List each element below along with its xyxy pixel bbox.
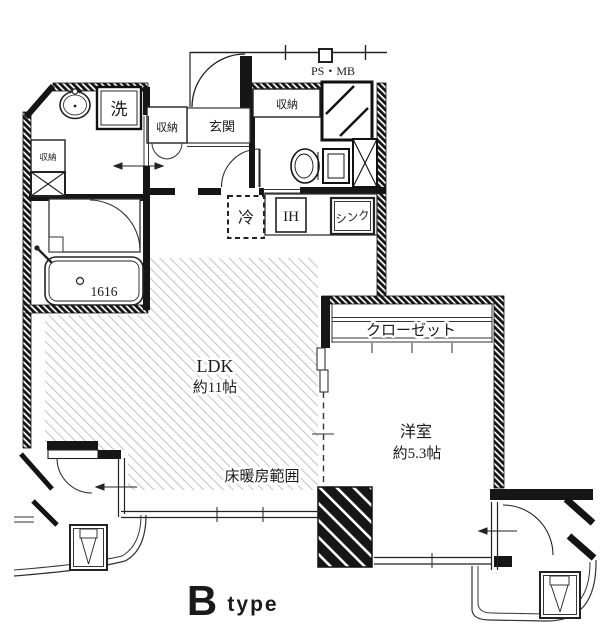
washroom-shaft-icon (31, 172, 65, 196)
unit-type-letter: B (187, 577, 217, 624)
ldk-balcony-door-frame (48, 450, 98, 459)
toilet-shaft-icon (353, 139, 377, 187)
partition-panel-b (320, 370, 328, 392)
washbasin-icon (60, 89, 90, 119)
partition-panel-a (317, 348, 325, 370)
meter-box-icon (319, 49, 332, 62)
ldk-area-label: 約11帖 (193, 379, 237, 396)
washbasin-drain (74, 105, 77, 108)
ps-shaft-icon (322, 82, 372, 140)
toilet-tank-inner (328, 154, 344, 178)
ps-mb-label: PS・MB (311, 64, 355, 78)
bifold-door-arc-right (167, 143, 182, 159)
wall-chamfer-bottom-right-b (569, 536, 594, 558)
toilet-bowl-inner (295, 154, 313, 178)
toilet-icon (291, 149, 349, 183)
wall-balcony-left-diag-b (33, 501, 57, 525)
wall-left (23, 112, 31, 448)
washroom-slide-arrow (114, 163, 163, 169)
ldk-balcony-door-arc (57, 458, 92, 493)
wall-hall-bottom-b (198, 188, 221, 195)
wall-washroom-right-bottom (143, 166, 150, 310)
wall-chamfer-bottom-right-a (566, 499, 593, 523)
wall-western-left (321, 296, 330, 348)
western-room-area-label: 約5.3帖 (393, 445, 442, 462)
western-room-name-label: 洋室 (400, 423, 432, 441)
bifold-door-arc-left (152, 143, 167, 159)
western-balcony-door-arc (503, 505, 553, 555)
wall-chamfer-top-left (26, 86, 53, 117)
western-window (374, 553, 491, 568)
entrance-storage-right-label: 収納 (276, 98, 298, 111)
wall-western-door-bottom (494, 556, 512, 567)
washbasin-faucet (72, 89, 77, 94)
wall-toilet-bottom (300, 187, 386, 194)
wall-western-right (494, 296, 504, 488)
wall-hall-bottom-a (143, 188, 175, 195)
toilet-sliding-door (263, 190, 300, 194)
wall-bottom-right-a (490, 489, 593, 500)
washroom-storage-label: 収納 (39, 152, 56, 162)
cooktop-label: IH (283, 209, 299, 225)
shower-drain-corner (49, 237, 63, 252)
ldk-name-label: LDK (197, 356, 234, 376)
ac-unit-left-icon (70, 525, 107, 570)
wall-western-top (322, 296, 502, 304)
ac-unit-right-icon (540, 572, 580, 618)
floorplan-page: PS・MB 玄関 収納 収納 冷 IH (0, 0, 610, 640)
bathtub-drain (77, 278, 84, 285)
pillar-hatched (318, 487, 372, 567)
wall-balcony-door-top (47, 441, 98, 450)
front-door-arc (192, 54, 245, 107)
washer-label: 洗 (111, 100, 128, 119)
genkan-label: 玄関 (209, 119, 235, 134)
bathtub-size-label: 1616 (91, 284, 118, 299)
entrance-storage-left-label: 収納 (156, 121, 178, 134)
fridge-label: 冷 (238, 209, 254, 227)
floorplan-canvas: PS・MB 玄関 収納 収納 冷 IH (0, 0, 610, 640)
floor-heating-label: 床暖房範囲 (224, 467, 299, 485)
wall-ldk-window-corner (98, 450, 121, 459)
closet-label: クローゼット (366, 322, 456, 339)
wall-balcony-left-diag-a (21, 454, 52, 489)
unit-type-word: type (227, 593, 278, 616)
wall-bath-bottom (23, 305, 148, 313)
